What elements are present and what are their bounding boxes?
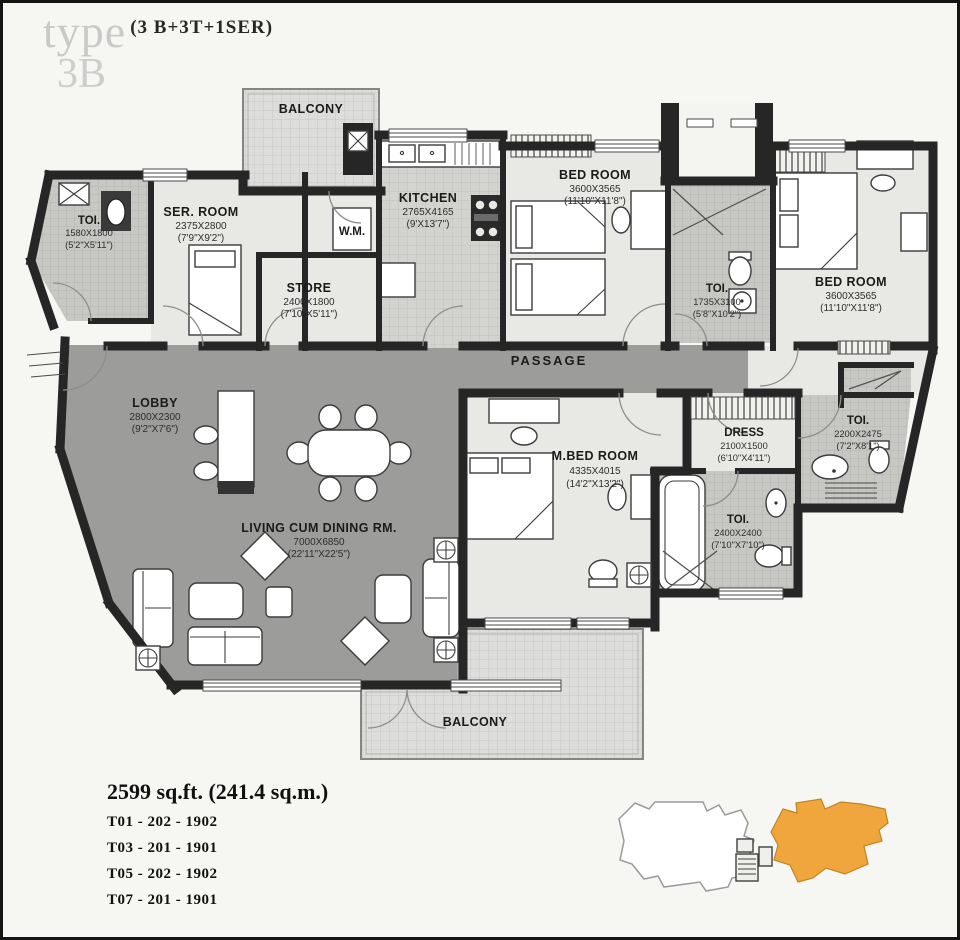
key-plan-highlighted-unit	[771, 799, 888, 882]
wardrobe-dress	[691, 397, 795, 419]
svg-text:(7'2"X8'1"): (7'2"X8'1")	[836, 441, 879, 451]
unit-row: T01 - 202 - 1902	[107, 814, 328, 831]
plan-footer: 2599 sq.ft. (241.4 sq.m.) T01 - 202 - 19…	[107, 779, 328, 909]
svg-text:2375X2800: 2375X2800	[175, 221, 227, 232]
balcony-top-label: BALCONY	[279, 102, 344, 116]
svg-text:4335X4015: 4335X4015	[569, 466, 621, 477]
type-code: (3 B+3T+1SER)	[130, 17, 273, 38]
key-plan	[619, 799, 888, 891]
svg-text:2400X1800: 2400X1800	[283, 297, 335, 308]
svg-text:1735X3100: 1735X3100	[693, 297, 741, 307]
dress-label: DRESS	[724, 427, 764, 439]
svg-text:(9'X13'7"): (9'X13'7")	[407, 219, 450, 230]
svg-text:1580X1800: 1580X1800	[65, 228, 113, 238]
svg-text:3600X3565: 3600X3565	[825, 291, 877, 302]
window-kitchen	[389, 129, 467, 142]
svg-text:(5'8"X10'2"): (5'8"X10'2")	[693, 309, 741, 319]
svg-text:3600X3565: 3600X3565	[569, 184, 621, 195]
floorplan-page: type(3 B+3T+1SER) 3B	[0, 0, 960, 940]
window-bed3	[789, 140, 845, 152]
store-label: STORE	[287, 281, 332, 295]
svg-text:(14'2"X13'2"): (14'2"X13'2")	[566, 479, 624, 490]
toi-entry-label: TOI.	[78, 215, 100, 227]
toi-2-label: TOI.	[706, 283, 728, 295]
kitchen-label: KITCHEN	[399, 191, 457, 205]
svg-text:2800X2300: 2800X2300	[129, 412, 181, 423]
svg-text:(7'10"X5'11"): (7'10"X5'11")	[281, 309, 338, 320]
svg-text:2765X4165: 2765X4165	[402, 207, 454, 218]
wm-label: W.M.	[339, 226, 365, 238]
svg-text:(5'2"X5'11"): (5'2"X5'11")	[65, 240, 113, 250]
svg-text:2200X2475: 2200X2475	[834, 429, 882, 439]
plan-header: type(3 B+3T+1SER) 3B	[43, 5, 273, 98]
svg-text:(22'11"X22'5"): (22'11"X22'5")	[288, 549, 350, 560]
window-mbed-south	[485, 618, 629, 629]
svg-text:(7'9"X9'2"): (7'9"X9'2")	[178, 233, 225, 244]
bed-room-3-label: BED ROOM	[815, 275, 887, 289]
toi-master-label: TOI.	[727, 514, 749, 526]
living-label: LIVING CUM DINING RM.	[241, 521, 397, 535]
lobby-label: LOBBY	[132, 396, 178, 410]
window-bed2	[595, 140, 659, 152]
svg-text:(11'10"X11'8"): (11'10"X11'8")	[564, 196, 626, 207]
vent-bed3-south	[838, 341, 890, 354]
toi-right-label: TOI.	[847, 415, 869, 427]
balcony-bottom-label: BALCONY	[443, 715, 508, 729]
window-ser	[143, 169, 187, 181]
unit-row: T05 - 202 - 1902	[107, 866, 328, 883]
svg-text:(6'10"X4'11"): (6'10"X4'11")	[718, 453, 771, 463]
svg-text:(11'10"X11'8"): (11'10"X11'8")	[820, 303, 882, 314]
toi-right-floor	[798, 395, 911, 508]
m-bed-label: M.BED ROOM	[552, 449, 639, 463]
svg-text:2100X1500: 2100X1500	[720, 441, 768, 451]
unit-row: T07 - 201 - 1901	[107, 892, 328, 909]
svg-text:2400X2400: 2400X2400	[714, 528, 762, 538]
unit-row: T03 - 201 - 1901	[107, 840, 328, 857]
window-toi-master	[719, 588, 783, 599]
svg-text:(7'10"X7'10"): (7'10"X7'10")	[711, 540, 765, 550]
area-text: 2599 sq.ft. (241.4 sq.m.)	[107, 779, 328, 805]
bed-room-2-label: BED ROOM	[559, 168, 631, 182]
key-plan-core	[736, 839, 772, 881]
type-name: 3B	[57, 50, 273, 98]
svg-text:(9'2"X7'6"): (9'2"X7'6")	[132, 424, 179, 435]
passage-label: PASSAGE	[511, 353, 588, 368]
svg-text:7000X6850: 7000X6850	[293, 537, 345, 548]
ser-room-label: SER. ROOM	[163, 205, 238, 219]
